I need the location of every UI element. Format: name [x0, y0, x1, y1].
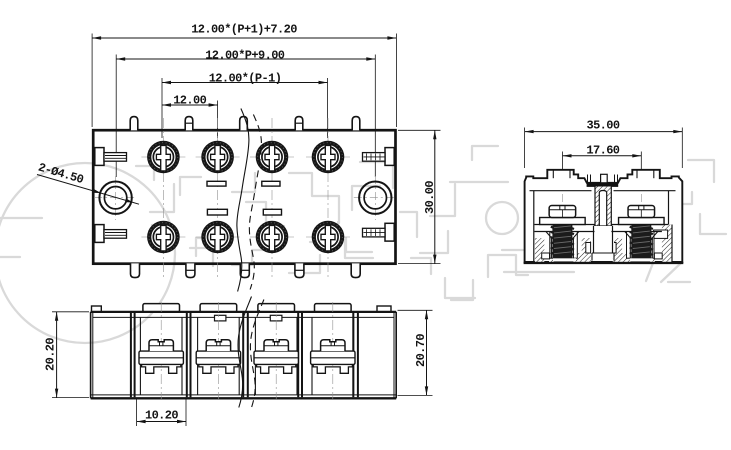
svg-text:30.00: 30.00 — [423, 181, 437, 214]
svg-text:12.00: 12.00 — [173, 94, 206, 108]
svg-text:12.00*(P-1): 12.00*(P-1) — [209, 72, 282, 86]
svg-text:20.70: 20.70 — [414, 334, 428, 367]
svg-text:12.00*(P+1)+7.20: 12.00*(P+1)+7.20 — [191, 23, 297, 37]
svg-text:20.20: 20.20 — [43, 338, 57, 371]
svg-text:12.00*P+9.00: 12.00*P+9.00 — [205, 49, 285, 63]
svg-text:35.00: 35.00 — [586, 118, 619, 132]
svg-text:17.60: 17.60 — [586, 144, 619, 158]
svg-text:10.20: 10.20 — [145, 409, 178, 423]
